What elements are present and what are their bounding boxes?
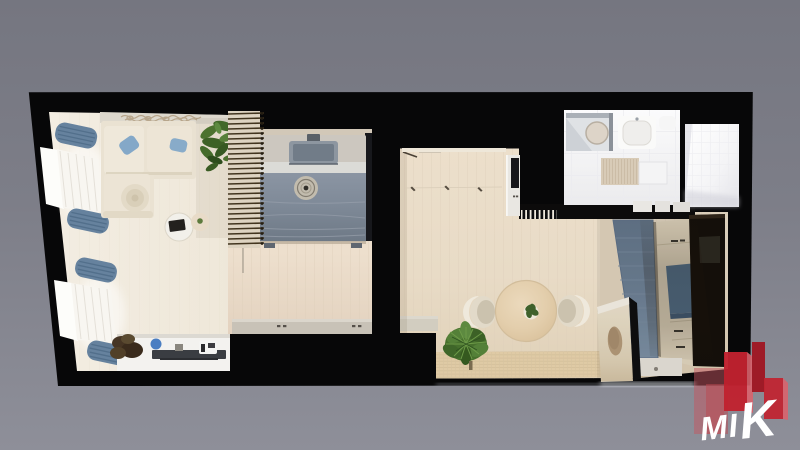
svg-text:MI: MI xyxy=(698,406,741,447)
